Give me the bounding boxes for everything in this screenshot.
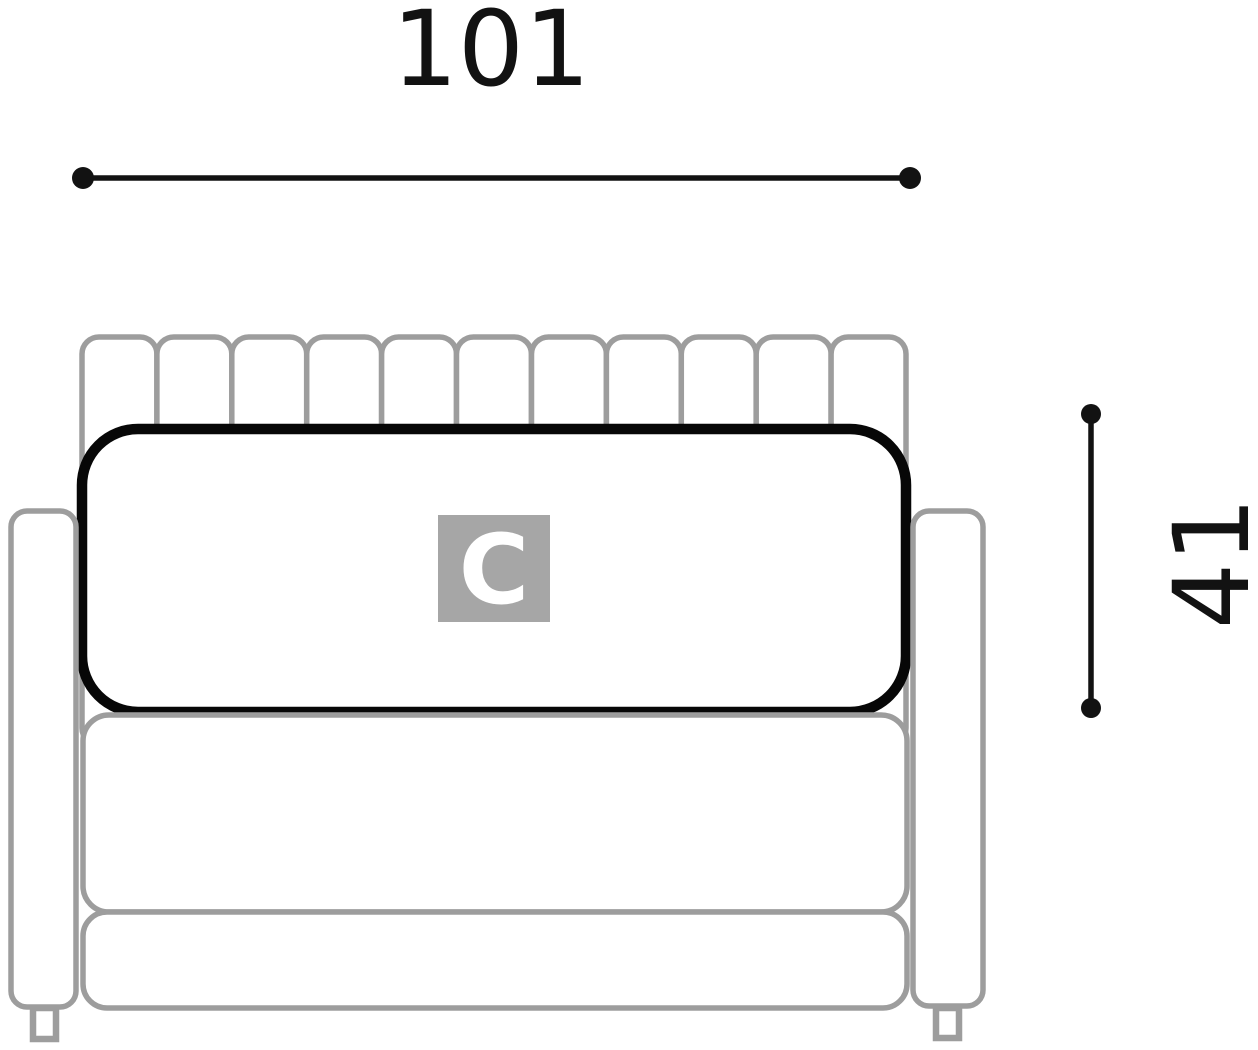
module-badge-label: C bbox=[459, 514, 529, 626]
module-badge: C bbox=[438, 514, 550, 626]
sofa-outline bbox=[11, 337, 983, 1039]
left-leg bbox=[33, 1008, 56, 1039]
width-dimension-label: 101 bbox=[392, 0, 591, 110]
seat-cushion bbox=[83, 715, 907, 912]
height-dimension: 41 bbox=[1081, 404, 1258, 718]
base-rail bbox=[83, 912, 907, 1008]
dimension-endpoint-dot bbox=[1081, 698, 1101, 718]
height-dimension-label: 41 bbox=[1151, 497, 1258, 629]
right-armrest bbox=[913, 511, 983, 1006]
dimension-endpoint-dot bbox=[72, 167, 94, 189]
dimension-endpoint-dot bbox=[899, 167, 921, 189]
dimension-endpoint-dot bbox=[1081, 404, 1101, 424]
left-armrest bbox=[11, 511, 76, 1007]
width-dimension: 101 bbox=[72, 0, 921, 189]
sofa-dimension-diagram: C 101 41 bbox=[0, 0, 1258, 1050]
right-leg bbox=[936, 1008, 959, 1038]
